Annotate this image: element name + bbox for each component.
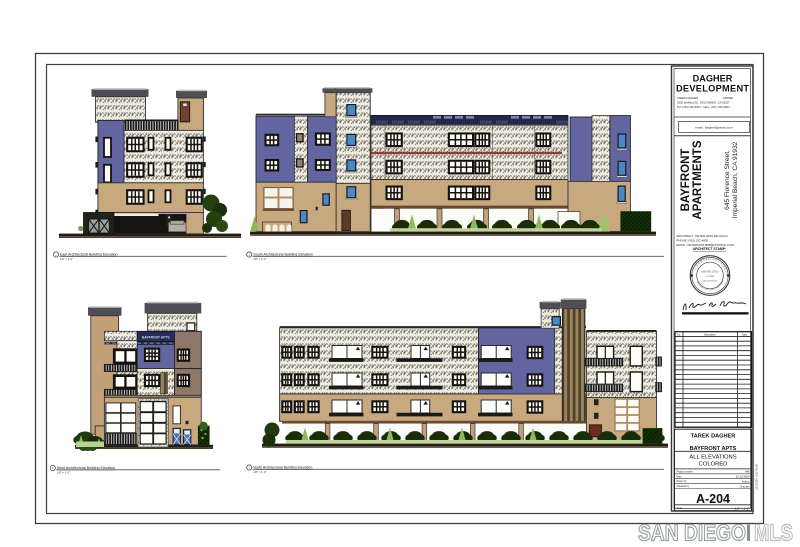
svg-text:PHONE: (951) 232-4805: PHONE: (951) 232-4805 — [677, 239, 709, 243]
svg-text:10/12/2024 10:27:45 AM: 10/12/2024 10:27:45 AM — [756, 464, 759, 490]
svg-text:Project number: Project number — [677, 470, 693, 473]
svg-text:ALL ELEVATIONS: ALL ELEVATIONS — [689, 455, 736, 461]
svg-text:EXP. 06/30/2025: EXP. 06/30/2025 — [703, 281, 719, 283]
svg-text:Imperial Beach, CA 91932: Imperial Beach, CA 91932 — [732, 141, 739, 218]
svg-text:MLS: MLS — [754, 520, 793, 546]
svg-text:645: 645 — [745, 470, 750, 474]
svg-text:COLORED: COLORED — [699, 461, 728, 467]
svg-text:3036 Wohlford Dr., ESCONDIDO,: 3036 Wohlford Dr., ESCONDIDO, CA 92027 — [677, 101, 730, 105]
svg-text:North Architectural Building E: North Architectural Building Elevation — [253, 465, 312, 469]
svg-text:Checked by: Checked by — [677, 485, 690, 488]
svg-text:SAN DIEGO: SAN DIEGO — [638, 520, 746, 546]
svg-text:Drawn by: Drawn by — [677, 480, 688, 483]
svg-text:West Architectural Building El: West Architectural Building Elevation — [57, 466, 115, 470]
svg-text:Scale: Scale — [677, 507, 684, 510]
svg-text:APARTMENTS: APARTMENTS — [692, 140, 704, 219]
svg-text:1/8" = 1'-0": 1/8" = 1'-0" — [735, 506, 750, 510]
svg-text:645 Florence Street,: 645 Florence Street, — [724, 150, 731, 210]
svg-text:Checker: Checker — [739, 484, 749, 488]
svg-text:1/8" = 1'-0": 1/8" = 1'-0" — [57, 470, 70, 474]
svg-text:DAGHER: DAGHER — [693, 74, 733, 84]
svg-text:Description: Description — [704, 333, 716, 336]
svg-text:HSIN-PEI CHOU: HSIN-PEI CHOU — [701, 272, 719, 274]
svg-text:BAYFRONT: BAYFRONT — [680, 149, 692, 212]
svg-text:ARCHITECT STAMP:: ARCHITECT STAMP: — [693, 247, 726, 251]
svg-text:Date: Date — [677, 475, 683, 478]
svg-text:TAREK DAGHER: TAREK DAGHER — [691, 434, 736, 440]
svg-text:BAYFRONT APTS: BAYFRONT APTS — [142, 335, 170, 339]
svg-text:No.: No. — [677, 334, 681, 336]
svg-text:1/8" = 1'-0": 1/8" = 1'-0" — [60, 257, 73, 261]
svg-text:East Architectural Building El: East Architectural Building Elevation — [60, 252, 118, 256]
svg-text:ARCHITECT : PETER HSIN-PEI CHO: ARCHITECT : PETER HSIN-PEI CHOU — [677, 234, 728, 238]
svg-text:Author: Author — [742, 479, 750, 483]
svg-text:A-204: A-204 — [696, 492, 730, 506]
svg-text:DEVELOPMENT: DEVELOPMENT — [676, 84, 749, 94]
svg-text:C-18998: C-18998 — [706, 276, 715, 278]
svg-text:Date: Date — [742, 333, 748, 336]
svg-text:1/8" = 1'-0": 1/8" = 1'-0" — [253, 257, 266, 261]
svg-text:10-12-2024: 10-12-2024 — [736, 475, 750, 479]
svg-text:email : ldagher@yahoo.com: email : ldagher@yahoo.com — [695, 125, 733, 129]
svg-text:PH: (310) 200-3003 - CELL: (20: PH: (310) 200-3003 - CELL: (207) 300-900… — [677, 105, 730, 109]
svg-text:1/8" = 1'-0": 1/8" = 1'-0" — [253, 470, 266, 474]
svg-text:South Architectural Building E: South Architectural Building Elevation — [253, 252, 313, 256]
svg-text:TAREK DAGHER -: TAREK DAGHER - OWNER — [677, 96, 733, 100]
